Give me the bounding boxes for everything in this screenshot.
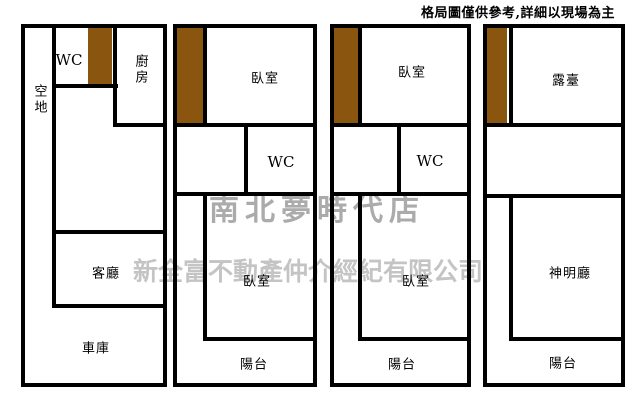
wall-segment (113, 28, 117, 127)
stairs-area (88, 28, 112, 84)
wall-segment (203, 196, 207, 341)
wall-segment (52, 230, 163, 234)
wall-segment (487, 194, 621, 198)
wall-segment (397, 127, 401, 196)
room-label-shrine-hall: 神明廳 (549, 263, 591, 282)
wall-segment (509, 28, 513, 127)
floorplan-unit-1: 空地 WC 廚房 客廳 車庫 (21, 24, 167, 387)
wall-segment (113, 123, 163, 127)
room-label-bedroom-top: 臥室 (398, 62, 426, 81)
stairs-area (177, 28, 203, 123)
floorplan-unit-4: 露臺 神明廳 陽台 (483, 24, 625, 387)
room-label-kitchen: 廚房 (131, 54, 150, 86)
room-label-bedroom-top: 臥室 (251, 68, 279, 87)
room-label-terrace: 露臺 (552, 70, 580, 89)
floorplan-unit-3: 臥室 WC 臥室 陽台 (330, 24, 471, 387)
room-label-open-space: 空地 (30, 84, 49, 116)
wall-segment (509, 198, 513, 341)
wall-segment (334, 192, 467, 196)
wall-segment (358, 28, 362, 127)
wall-segment (509, 337, 621, 341)
wall-segment (52, 304, 163, 308)
room-label-balcony: 陽台 (240, 354, 268, 373)
room-label-wc: WC (56, 51, 83, 69)
wall-segment (487, 123, 621, 127)
wall-segment (52, 84, 118, 88)
room-label-wc: WC (268, 153, 295, 171)
wall-segment (203, 337, 313, 341)
wall-segment (244, 127, 248, 196)
room-label-balcony: 陽台 (549, 353, 577, 372)
stairs-area (487, 28, 507, 125)
floorplan-unit-2: 臥室 WC 臥室 陽台 (173, 24, 317, 387)
wall-segment (358, 196, 362, 341)
disclaimer-text: 格局圖僅供參考,詳細以現場為主 (421, 2, 615, 21)
wall-segment (358, 337, 467, 341)
floorplan-page: 格局圖僅供參考,詳細以現場為主 南北夢時代店 新全富不動產仲介經紀有限公司 空地… (0, 0, 640, 407)
wall-segment (203, 28, 207, 127)
room-label-garage: 車庫 (82, 338, 110, 357)
wall-segment (177, 192, 313, 196)
room-label-balcony: 陽台 (388, 354, 416, 373)
room-label-bedroom-bottom: 臥室 (243, 271, 271, 290)
room-label-wc: WC (417, 152, 444, 170)
wall-segment (52, 28, 56, 308)
room-label-living-room: 客廳 (92, 263, 120, 282)
stairs-area (334, 28, 358, 123)
room-label-bedroom-bottom: 臥室 (402, 271, 430, 290)
